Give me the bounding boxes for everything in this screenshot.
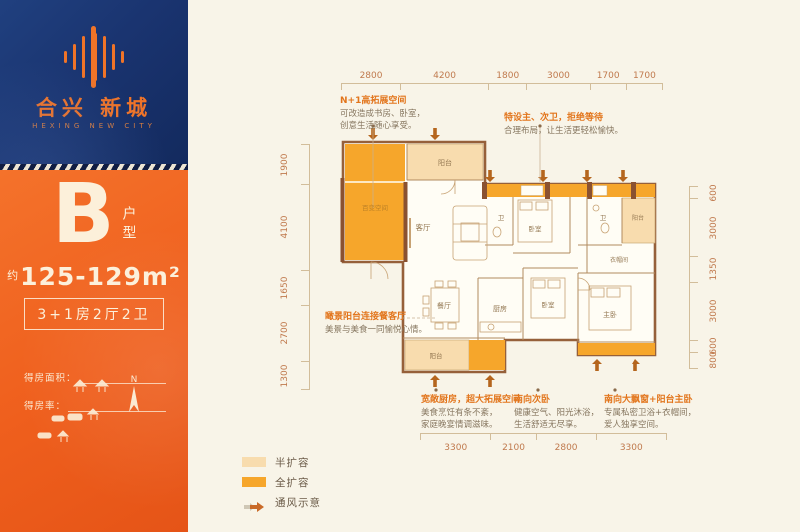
room-label-cloakroom: 衣帽间 (610, 256, 628, 264)
dim-value: 600 (709, 180, 719, 206)
brand-name-cn: 合兴 新城 (0, 92, 188, 122)
dim-value: 1650 (280, 275, 290, 301)
room-label-bedroom-b: 卧室 (542, 300, 556, 309)
blank-line (79, 373, 166, 384)
room-label-bedroom-a: 卧室 (529, 224, 543, 233)
dim-value: 3000 (527, 71, 589, 81)
room-label-bath-b: 卫 (600, 214, 607, 222)
dim-value: 3300 (421, 443, 490, 453)
half-expand-swatch (242, 457, 266, 467)
dim-value: 4100 (280, 214, 290, 240)
legend-full-expand: 全扩容 (242, 476, 321, 488)
unit-info-panel: B 户型 约125-129m² 3+1房2厅2卫 得房面积： 得房率： (0, 170, 188, 532)
room-label-balcony-right: 阳台 (632, 214, 644, 222)
dim-value: 3300 (597, 443, 666, 453)
site-icons: N (30, 370, 162, 448)
unit-letter: B (52, 172, 115, 258)
field-floor-area-label: 得房面积： (24, 370, 77, 384)
room-label-dining: 餐厅 (437, 301, 451, 310)
zone-full-expand-band (485, 184, 655, 197)
unit-type-label: 户型 (119, 206, 139, 244)
annotation-master: 南向大飘窗+阳台主卧 专属私密卫浴+衣帽间， 爱人独享空间。 (604, 394, 696, 431)
room-label-balcony-bottom: 阳台 (430, 351, 443, 360)
field-floor-area: 得房面积： (24, 370, 166, 384)
room-label-kitchen: 厨房 (493, 304, 507, 313)
zone-full-expand-flex (345, 144, 405, 260)
dim-value: 4200 (401, 71, 488, 81)
annotation-two-baths: 特设主、次卫，拒绝等待 合理布局，让生活更轻松愉快。 (504, 112, 623, 137)
dim-value: 1700 (627, 71, 662, 81)
annotation-view-balcony: 瞰景阳台连接餐客厅 美景与美食一同愉悦心情。 (325, 311, 427, 336)
room-label-flex-space: 百变空间 (362, 203, 388, 212)
dim-value: 1900 (280, 152, 290, 178)
full-expand-swatch (242, 477, 266, 487)
legend-half-expand: 半扩容 (242, 456, 321, 468)
zone-full-expand-master (578, 343, 655, 355)
brand-name-en: HEXING NEW CITY (0, 122, 188, 130)
dim-ruler-left: 1900 4100 1650 2700 1300 (301, 144, 310, 390)
room-label-master: 主卧 (603, 310, 617, 319)
brand-header: 合兴 新城 HEXING NEW CITY (0, 0, 188, 164)
dim-value: 1800 (489, 71, 526, 81)
field-floor-rate: 得房率： (24, 398, 166, 412)
floorplan-svg: 百变空间 阳台 客厅 餐厅 厨房 卫 卫 卧室 卧室 主卧 衣帽间 阳台 阳台 (335, 122, 668, 394)
dim-value: 3000 (709, 298, 719, 324)
room-label-bath-a: 卫 (498, 214, 505, 222)
area-prefix: 约 (7, 269, 18, 282)
dim-value: 1700 (591, 71, 626, 81)
room-label-living: 客厅 (416, 222, 431, 232)
unit-area: 约125-129m² (0, 262, 188, 291)
dim-ruler-bottom: 3300 2100 2800 3300 (420, 433, 667, 455)
legend-ventilation: 通风示意 (242, 496, 321, 508)
compass-icon: N (129, 375, 139, 412)
compass-north-label: N (131, 375, 138, 385)
dim-ruler-top: 2800 4200 1800 3000 1700 1700 (341, 70, 663, 92)
unit-badge: B 户型 (52, 172, 139, 258)
brand-logo-icon (46, 26, 142, 88)
blank-line (68, 401, 166, 412)
dim-value: 2800 (537, 443, 596, 453)
annotation-flex-space: N+1高拓展空间 可改造成书房、卧室， 创意生活随心享受。 (340, 95, 425, 132)
zone-full-expand-bottom (469, 340, 505, 370)
dim-value: 1300 (280, 363, 290, 389)
annotation-south-bedroom: 南向次卧 健康空气、阳光沐浴， 生活舒适无尽享。 (514, 394, 599, 431)
dim-value: 2700 (280, 320, 290, 346)
dim-value: 2800 (342, 71, 400, 81)
dim-value: 800 (709, 347, 719, 373)
field-floor-rate-label: 得房率： (24, 398, 66, 412)
dim-ruler-right: 600 3000 1350 3000 600 800 (689, 186, 698, 369)
area-value: 125-129m² (20, 262, 181, 291)
dim-value: 1350 (709, 256, 719, 282)
legend: 半扩容 全扩容 通风示意 (242, 456, 321, 516)
annotation-kitchen: 宽敞厨房，超大拓展空间 美食烹饪有条不紊， 家庭晚宴情调滋味。 (421, 394, 520, 431)
dim-value: 2100 (491, 443, 535, 453)
dim-value: 3000 (709, 215, 719, 241)
brand-panel: 合兴 新城 HEXING NEW CITY B 户型 约125-129m² 3+… (0, 0, 188, 532)
ventilation-arrow-icon (242, 497, 266, 507)
room-label-balcony-top: 阳台 (438, 158, 452, 167)
unit-spec-badge: 3+1房2厅2卫 (24, 298, 164, 330)
brochure-canvas: 合兴 新城 HEXING NEW CITY B 户型 约125-129m² 3+… (0, 0, 800, 532)
